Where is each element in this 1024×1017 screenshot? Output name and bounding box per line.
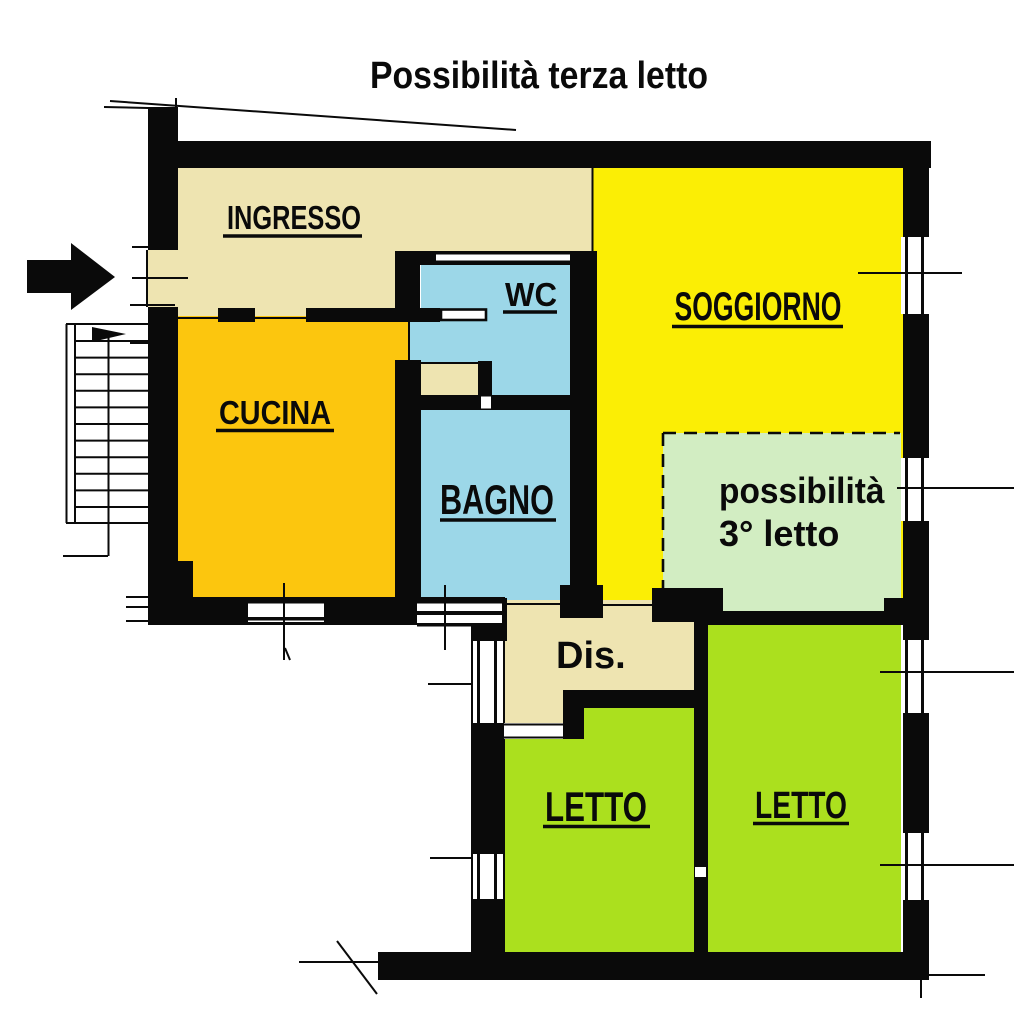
- svg-text:Possibilità terza letto: Possibilità terza letto: [370, 55, 708, 97]
- svg-text:CUCINA: CUCINA: [219, 394, 331, 431]
- svg-text:LETTO: LETTO: [545, 783, 647, 830]
- svg-text:Dis.: Dis.: [556, 635, 626, 677]
- svg-text:LETTO: LETTO: [755, 785, 847, 827]
- svg-text:3° letto: 3° letto: [719, 513, 839, 554]
- svg-text:BAGNO: BAGNO: [440, 476, 554, 523]
- svg-text:INGRESSO: INGRESSO: [227, 199, 361, 236]
- svg-text:possibilità: possibilità: [719, 472, 885, 511]
- svg-text:WC: WC: [505, 276, 557, 313]
- svg-text:SOGGIORNO: SOGGIORNO: [675, 285, 842, 329]
